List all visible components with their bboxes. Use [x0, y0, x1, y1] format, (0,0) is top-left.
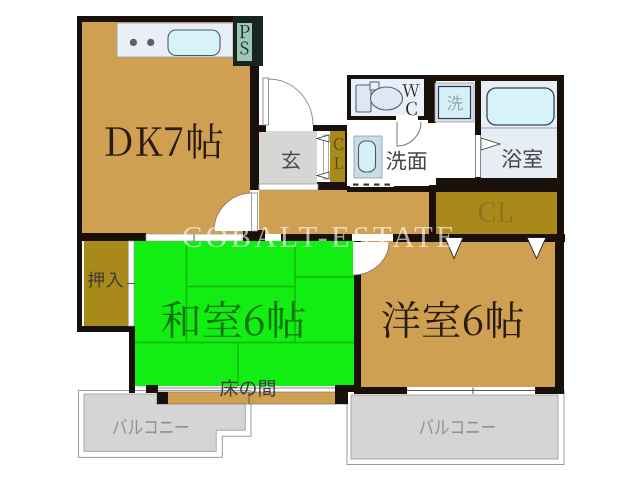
svg-text:COBALT-ESTATE: COBALT-ESTATE [182, 220, 458, 254]
